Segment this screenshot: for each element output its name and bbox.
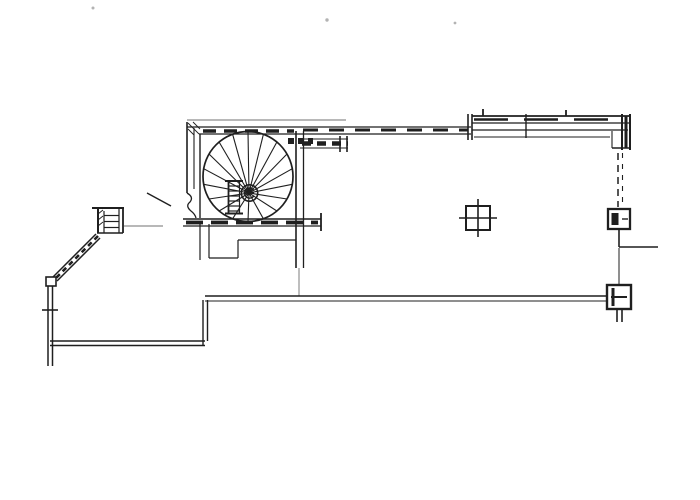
step-corner-wall (203, 300, 208, 346)
hoist-circle-symbol (241, 185, 257, 201)
lower-left-wall (50, 341, 205, 346)
floor-plan-canvas (0, 0, 700, 500)
column-fill (612, 213, 619, 225)
torn-wall-opening (187, 193, 196, 218)
stair-ladder (225, 181, 243, 214)
spiral-staircase (203, 132, 293, 222)
stair-tread-line (248, 132, 249, 194)
stair-room (183, 122, 348, 296)
scanned-floor-plan-page (0, 0, 700, 500)
column-lower-right (607, 285, 631, 322)
speck (325, 18, 328, 21)
right-wall-dashed (618, 153, 623, 207)
stair-tread-line (233, 134, 249, 193)
bottom-long-wall (205, 296, 607, 301)
top-wall-thick (472, 109, 631, 138)
left-wall (42, 286, 58, 366)
stair-tread-line (249, 193, 287, 199)
wall-joint (46, 277, 56, 286)
speck (454, 22, 457, 25)
top-right-corner (612, 114, 631, 150)
diagonal-wall (53, 234, 100, 281)
column-marker-mid (459, 199, 497, 237)
entry-steps (200, 224, 296, 260)
column-upper-right (608, 209, 630, 247)
door-swing-line (147, 193, 171, 206)
specks (92, 7, 457, 25)
speck (92, 7, 95, 10)
left-post (92, 208, 124, 233)
